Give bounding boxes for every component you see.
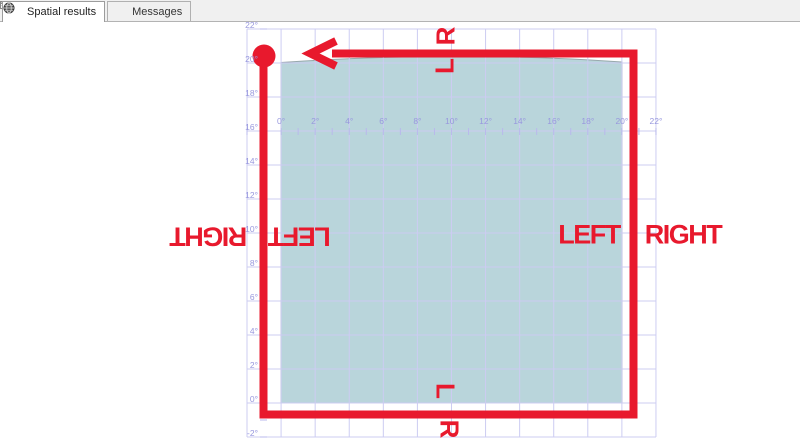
y-axis-label: 0° xyxy=(250,395,258,404)
y-axis-label: 2° xyxy=(250,361,258,370)
left-edge-outer-label: RIGHT xyxy=(171,221,248,252)
x-axis-label: 20° xyxy=(615,117,628,126)
y-axis-label: 20° xyxy=(245,55,258,64)
y-axis-label: 22° xyxy=(245,21,258,30)
results-tab-bar: Spatial results Messages xyxy=(0,0,800,22)
y-axis-label: 14° xyxy=(245,157,258,166)
y-axis-label: 6° xyxy=(250,293,258,302)
tab-label: Spatial results xyxy=(27,6,96,18)
tab-label: Messages xyxy=(132,6,182,18)
messages-icon xyxy=(116,6,128,18)
y-axis-label: 12° xyxy=(245,191,258,200)
x-axis-label: 0° xyxy=(277,117,285,126)
top-edge-right-letter: R xyxy=(431,27,462,46)
y-axis-label: -2° xyxy=(247,429,258,438)
spatial-results-canvas[interactable]: 0°2°4°6°8°10°12°14°16°18°20°22° 22°20°18… xyxy=(0,0,800,446)
right-edge-outer-label: RIGHT xyxy=(645,220,722,251)
x-axis-label: 6° xyxy=(379,117,387,126)
x-axis-label: 10° xyxy=(445,117,458,126)
x-axis-label: 18° xyxy=(581,117,594,126)
tab-spatial-results[interactable]: Spatial results xyxy=(2,1,105,22)
x-axis-label: 8° xyxy=(413,117,421,126)
x-axis-label: 4° xyxy=(345,117,353,126)
left-edge-inner-label: LEFT xyxy=(269,221,331,252)
y-axis-label: 16° xyxy=(245,123,258,132)
bottom-edge-left-letter: L xyxy=(430,383,461,399)
globe-icon xyxy=(11,6,23,18)
bottom-edge-right-letter: R xyxy=(434,420,465,439)
top-edge-left-letter: L xyxy=(430,58,461,74)
y-axis-label: 8° xyxy=(250,259,258,268)
tab-messages[interactable]: Messages xyxy=(107,1,191,21)
y-axis-label: 4° xyxy=(250,327,258,336)
x-axis-label: 22° xyxy=(650,117,663,126)
x-axis-label: 16° xyxy=(547,117,560,126)
y-axis-label: 18° xyxy=(245,89,258,98)
spatial-viewer-window: 0°2°4°6°8°10°12°14°16°18°20°22° 22°20°18… xyxy=(0,0,800,446)
x-axis-label: 2° xyxy=(311,117,319,126)
right-edge-inner-label: LEFT xyxy=(558,220,620,251)
x-axis-label: 14° xyxy=(513,117,526,126)
x-axis-label: 12° xyxy=(479,117,492,126)
